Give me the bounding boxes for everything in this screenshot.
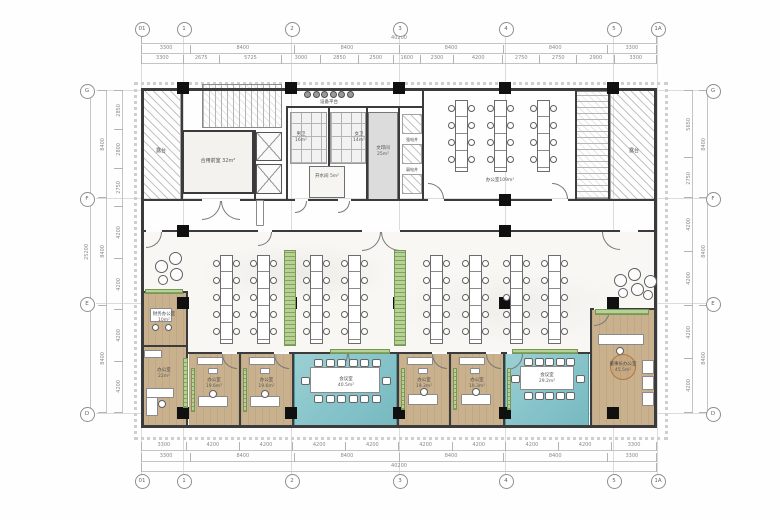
column [177,407,189,419]
column [177,297,189,309]
office-chair [541,277,548,284]
desk-divider [258,288,269,289]
furniture [470,368,480,374]
conference-chair [524,358,533,366]
desk-cluster [213,255,240,344]
desk-cluster [503,255,530,344]
dim-top-minor: 3300267557253000285025001600230042002750… [141,55,657,64]
desk-divider [258,305,269,306]
desk-divider [311,271,322,272]
office-chair [503,294,510,301]
column [499,194,511,206]
floor-plan-canvas: 40200 330084008400840084003300 330026755… [0,0,780,520]
desk-cluster [541,255,568,344]
planter-strip [191,368,195,412]
office-chair [250,294,257,301]
dim-value: 8400 [98,90,107,197]
dim-value: 25200 [82,90,91,413]
dim-right-minor: 565027504200420042004200 [684,90,693,413]
desk-divider [549,339,560,340]
planter-strip [512,349,578,354]
dim-value: 4200 [684,305,693,359]
dim-value: 2800 [114,129,123,168]
column [285,407,297,419]
office-chair [270,260,277,267]
desk-divider [456,116,467,117]
furniture [598,334,644,345]
dim-value: 4200 [114,258,123,309]
desk-cluster [250,255,277,344]
office-chair [448,105,455,112]
office-chair [550,156,557,163]
door-opening [428,199,444,201]
office-chair [361,260,368,267]
planter-strip [595,309,649,315]
desk-chair [152,324,159,331]
dim-value: 4200 [239,442,292,451]
office-chair [530,105,537,112]
dim-value: 4200 [114,309,123,360]
stair-right [576,91,609,199]
desk-divider [549,322,560,323]
office-chair [303,294,310,301]
furniture [208,368,218,374]
dim-left-total: 25200 [82,90,91,413]
wall [398,106,400,200]
dim-value: 3300 [141,45,190,54]
office-chair [550,139,557,146]
equipment-unit [330,91,337,98]
dim-value: 4200 [684,251,693,305]
door-opening [552,199,568,201]
shaft-b-label: 弱电井 [400,167,424,173]
hot-water-room [309,166,345,198]
grid-bubble-row: D [706,407,721,422]
office-chair [462,311,469,318]
conference-chair [511,375,520,383]
office-chair [487,105,494,112]
dim-value: 3300 [611,442,657,451]
desk-divider [470,305,481,306]
office-chair [487,139,494,146]
office-b-label: 办公室19.6m² [243,378,290,390]
office-d-label: 办公室19.3m² [453,378,501,390]
office-chair [468,105,475,112]
dim-value: 2750 [502,55,539,64]
office-chair [443,328,450,335]
dim-top-major: 330084008400840084003300 [141,45,657,54]
dim-value: 8400 [294,453,398,462]
desk-divider [258,271,269,272]
grid-bubble-row: G [80,84,95,99]
grid-bubble-row: F [80,192,95,207]
dim-value: 8400 [699,305,708,413]
wall [181,88,183,200]
office-chair [341,260,348,267]
office-chair [233,311,240,318]
desk-divider [349,305,360,306]
office-a-label: 办公室19.6m² [191,378,237,390]
finance-label: 财务办公室10m² [141,312,187,324]
office-chair [270,277,277,284]
shaft-box-2 [402,144,422,164]
office-chair [462,277,469,284]
office-chair [503,311,510,318]
shaft-a-label: 强电井 [400,137,424,143]
office-chair [361,311,368,318]
grid-bubble-col: 01 [135,474,150,489]
office-chair [561,260,568,267]
furniture [418,368,428,374]
grid-bubble-col: 5 [607,22,622,37]
column [393,82,405,94]
terrace-left [141,88,181,200]
wall [141,345,188,347]
desk-divider [221,339,232,340]
desk-run [548,255,561,344]
office-chair [550,105,557,112]
planter-strip [183,358,188,408]
conference-chair [314,395,323,403]
conf-big-label: 会议室40.5m² [312,377,380,389]
grid-bubble-col: 1 [177,474,192,489]
column [285,82,297,94]
office-chair [361,294,368,301]
office-chair [503,277,510,284]
desk-divider [495,150,506,151]
lounge-chair [628,268,641,281]
dim-value: 4200 [452,442,505,451]
furniture [407,357,433,365]
office-chair [487,156,494,163]
lounge-chair [155,260,168,273]
office-chair [561,328,568,335]
dim-value: 2750 [114,168,123,206]
office-chair [233,328,240,335]
desk-divider [511,322,522,323]
desk-divider [258,322,269,323]
office-chair [462,260,469,267]
office-chair [213,260,220,267]
office-chair [530,122,537,129]
dim-value: 4200 [558,442,611,451]
desk-divider [431,288,442,289]
grid-bubble-col: 4 [499,22,514,37]
office-chair [323,277,330,284]
office-chair [448,156,455,163]
conference-chair [576,375,585,383]
office-22-label: 办公室22m² [141,368,187,380]
office-chair [523,328,530,335]
desk-divider [456,167,467,168]
equipment-unit [313,91,320,98]
desk-chair [158,400,166,408]
elevator-1 [256,132,282,161]
planter-strip [145,289,183,294]
dim-bottom-major: 330084008400840084003300 [141,453,657,462]
office-chair [341,277,348,284]
wall [254,130,256,200]
desk-run [257,255,270,344]
office-top-label: 办公室109m² [466,178,534,184]
office-chair [561,311,568,318]
wall [286,106,288,200]
office-chair [482,277,489,284]
grid-bubble-row: G [706,84,721,99]
conference-chair [382,377,391,385]
equipment-label: 设备平台 [301,100,357,106]
desk-run [510,255,523,344]
lounge-chair [618,288,628,298]
furniture [459,357,485,365]
column [499,82,511,94]
office-chair [468,156,475,163]
desk-divider [549,288,560,289]
dim-value: 3300 [141,453,190,462]
office-chair [462,294,469,301]
desk-run [455,100,468,172]
planter-strip [330,349,390,354]
dim-value: 8400 [399,453,503,462]
office-chair [482,311,489,318]
office-chair [550,122,557,129]
elevator-2 [256,164,282,194]
dim-value: 8400 [190,453,294,462]
desk-run [310,255,323,344]
terrace-right-label: 露台 [614,148,654,154]
grid-bubble-row: D [80,407,95,422]
office-chair [507,139,514,146]
conference-chair [524,392,533,400]
office-chair [541,328,548,335]
office-chair [503,328,510,335]
planter-strip [394,250,406,346]
office-chair [468,122,475,129]
office-chair [443,260,450,267]
terrace-right [610,90,657,200]
desk-divider [511,271,522,272]
office-chair [341,311,348,318]
conference-chair [314,359,323,367]
office-chair [530,156,537,163]
column [607,407,619,419]
office-chair [361,328,368,335]
office-chair [507,156,514,163]
equipment-unit [347,91,354,98]
office-chair [507,105,514,112]
office-chair [541,294,548,301]
desk-divider [456,150,467,151]
conference-chair [337,395,346,403]
exec-label: 董事长办公室45.5m² [595,362,651,374]
wall [575,90,577,200]
conference-chair [372,395,381,403]
desk-divider [470,322,481,323]
desk-run [494,100,507,172]
desk-run [537,100,550,172]
dim-value: 2850 [114,90,123,129]
dim-right-major: 840084008400 [699,90,708,413]
desk-divider [311,305,322,306]
desk-divider [431,339,442,340]
desk-chair [261,390,269,398]
office-c-label: 办公室19.3m² [401,378,447,390]
grid-bubble-col: 1A [651,474,666,489]
dim-value: 3300 [607,453,657,462]
office-chair [448,122,455,129]
dim-value: 1600 [393,55,420,64]
lounge-chair [643,290,653,300]
desk-cluster [341,255,368,344]
grid-bubble-col: 3 [393,474,408,489]
dim-bottom-minor: 3300420042004200420042004200420042003300 [141,442,657,451]
desk-cluster [448,100,475,172]
wall [608,90,610,200]
office-chair [541,260,548,267]
desk-divider [538,133,549,134]
office-chair [443,311,450,318]
office-chair [561,277,568,284]
lobby-label: 合用前室 32m² [184,158,252,164]
dim-value: 8400 [699,90,708,197]
conference-chair [349,395,358,403]
dim-value: 4200 [186,442,239,451]
shaft-box-1 [402,114,422,134]
conference-chair [556,358,565,366]
desk-divider [221,305,232,306]
dim-value: 2750 [684,157,693,197]
desk-divider [311,288,322,289]
desk-cluster [423,255,450,344]
desk-divider [511,305,522,306]
column [177,82,189,94]
wall [286,106,424,108]
dim-value: 4200 [684,358,693,413]
desk-run [469,255,482,344]
dim-value: 8400 [98,197,107,304]
grid-bubble-col: 1A [651,22,666,37]
dim-value: 8400 [699,197,708,304]
lounge-chair [644,275,657,288]
equipment-unit [338,91,345,98]
office-chair [303,328,310,335]
grid-bubble-col: 01 [135,22,150,37]
desk-cluster [530,100,557,172]
office-chair [448,139,455,146]
conference-chair [566,392,575,400]
office-chair [561,294,568,301]
womens-label: 女卫14m² [344,132,374,144]
desk-divider [470,339,481,340]
wall [590,308,592,427]
lounge-chair [614,274,627,287]
office-chair [323,328,330,335]
dim-value: 5725 [219,55,281,64]
office-chair [233,294,240,301]
wall [141,425,657,428]
conference-chair [349,359,358,367]
office-chair [530,139,537,146]
desk-divider [470,271,481,272]
dim-value: 8400 [503,45,607,54]
conference-chair [545,392,554,400]
furniture [642,392,654,406]
office-chair [423,260,430,267]
wall [654,88,657,428]
office-chair [423,328,430,335]
office-chair [303,277,310,284]
desk-divider [549,305,560,306]
dim-value: 2750 [539,55,576,64]
office-chair [443,294,450,301]
furniture [642,376,654,390]
grid-bubble-col: 5 [607,474,622,489]
dim-value: 5650 [684,90,693,157]
office-chair [443,277,450,284]
dim-value: 3300 [607,45,657,54]
office-chair [523,294,530,301]
grid-bubble-row: F [706,192,721,207]
desk-cluster [303,255,330,344]
dim-value: 2300 [420,55,453,64]
dim-bottom-total: 40200 [141,463,657,472]
dim-value: 4200 [453,55,502,64]
conference-chair [337,359,346,367]
desk-divider [221,288,232,289]
desk-divider [349,339,360,340]
mens-label: 男卫16m² [286,132,316,144]
desk-chair [209,390,217,398]
grid-bubble-col: 4 [499,474,514,489]
desk-divider [538,167,549,168]
dim-value: 2850 [320,55,358,64]
grid-bubble-col: 3 [393,22,408,37]
furniture [256,200,264,226]
office-chair [523,277,530,284]
grid-bubble-col: 2 [285,22,300,37]
office-chair [361,277,368,284]
dim-value: 8400 [190,45,294,54]
office-chair [233,260,240,267]
column [499,225,511,237]
grid-bubble-row: E [80,297,95,312]
desk-run [430,255,443,344]
desk-divider [456,133,467,134]
conf-small-label: 会议室29.2m² [521,373,573,385]
office-chair [507,122,514,129]
desk-divider [538,116,549,117]
conference-chair [556,392,565,400]
wall [422,88,424,200]
dim-value: 2500 [358,55,393,64]
desk-divider [221,322,232,323]
dim-value: 2900 [576,55,614,64]
desk-divider [311,339,322,340]
office-chair [323,294,330,301]
conference-chair [372,359,381,367]
desk-divider [495,133,506,134]
office-chair [213,294,220,301]
office-chair [341,328,348,335]
desk-divider [431,322,442,323]
office-chair [213,277,220,284]
conference-chair [360,359,369,367]
office-chair [523,260,530,267]
furniture [144,350,162,358]
desk-divider [221,271,232,272]
dim-value: 4200 [292,442,345,451]
terrace-left-label: 露台 [144,148,178,154]
